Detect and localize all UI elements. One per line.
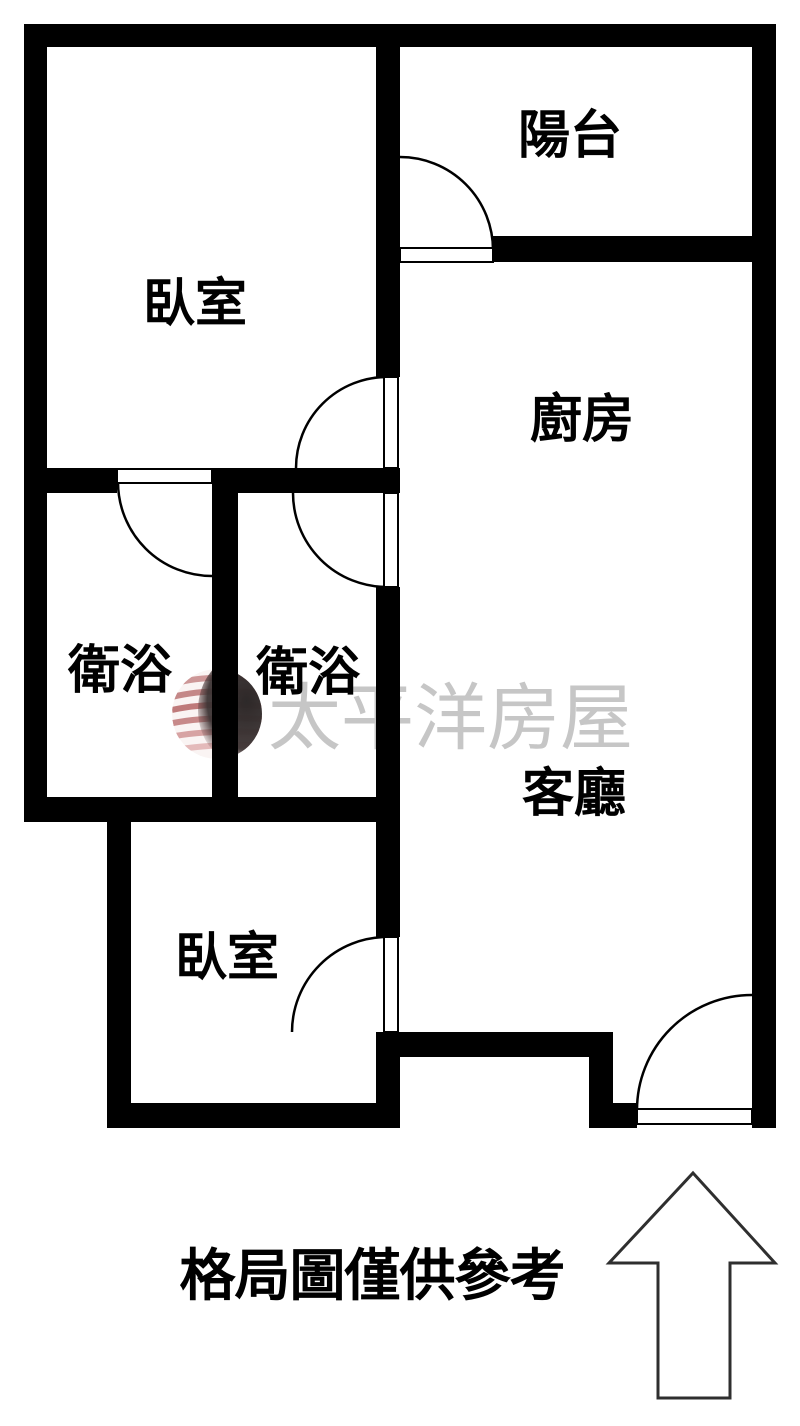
- room-label-bathroom-left: 衛浴: [67, 642, 173, 700]
- room-label-bedroom-top: 臥室: [143, 275, 247, 333]
- wall-right-outer: [752, 24, 776, 1128]
- room-label-balcony: 陽台: [518, 107, 622, 165]
- bedroom-bottom-door-arc: [292, 937, 387, 1032]
- balcony-door: [400, 157, 493, 262]
- wall-center-vertical-upper: [376, 24, 400, 377]
- wall-center-vertical-middle: [376, 587, 400, 937]
- bathroom-right-door-arc: [293, 493, 387, 587]
- wall-living-step-horizontal: [376, 1032, 613, 1057]
- floor-plan-svg: 太平洋房屋: [0, 0, 800, 1426]
- room-label-kitchen: 廚房: [530, 390, 634, 449]
- watermark: 太平洋房屋: [172, 656, 633, 764]
- entrance-door-arc: [637, 995, 752, 1110]
- wall-bedroom-top-bottom-right: [212, 468, 376, 493]
- bathroom-right-door: [293, 493, 398, 587]
- bedroom-bottom-door: [292, 937, 398, 1032]
- wall-living-step-vertical: [589, 1032, 613, 1128]
- wall-left-outer: [24, 24, 47, 822]
- entrance-door: [637, 995, 752, 1124]
- floor-plan-page: 太平洋房屋: [0, 0, 800, 1426]
- bathroom-right-door-leaf: [384, 493, 398, 587]
- bedroom-top-door-leaf: [384, 377, 398, 468]
- balcony-door-arc: [400, 157, 493, 250]
- north-arrow-icon: [609, 1173, 775, 1398]
- walls: [24, 24, 776, 1128]
- bathroom-left-door-leaf: [117, 469, 212, 483]
- room-label-living-room: 客廳: [522, 765, 626, 823]
- wall-entrance-stub: [613, 1103, 637, 1128]
- wall-bathroom-divider: [212, 493, 238, 822]
- wall-balcony-bottom: [493, 236, 752, 262]
- balcony-door-leaf: [400, 248, 493, 262]
- bedroom-top-door-arc: [296, 377, 387, 468]
- entrance-door-leaf: [637, 1109, 752, 1124]
- room-label-bathroom-right: 衛浴: [255, 644, 361, 702]
- room-label-bedroom-bottom: 臥室: [175, 929, 279, 987]
- bedroom-bottom-door-leaf: [384, 937, 398, 1032]
- wall-bedroom-bottom-left: [107, 822, 131, 1128]
- caption: 格局圖僅供參考: [180, 1244, 565, 1307]
- bedroom-top-door: [296, 377, 398, 468]
- wall-bedroom-top-bottom-left: [24, 468, 117, 493]
- wall-bathrooms-bottom: [24, 797, 400, 822]
- wall-bedroom-bottom-bottom: [107, 1103, 400, 1128]
- wall-center-vertical-junction: [376, 468, 400, 493]
- bathroom-left-door: [117, 469, 212, 576]
- bathroom-left-door-arc: [118, 482, 212, 576]
